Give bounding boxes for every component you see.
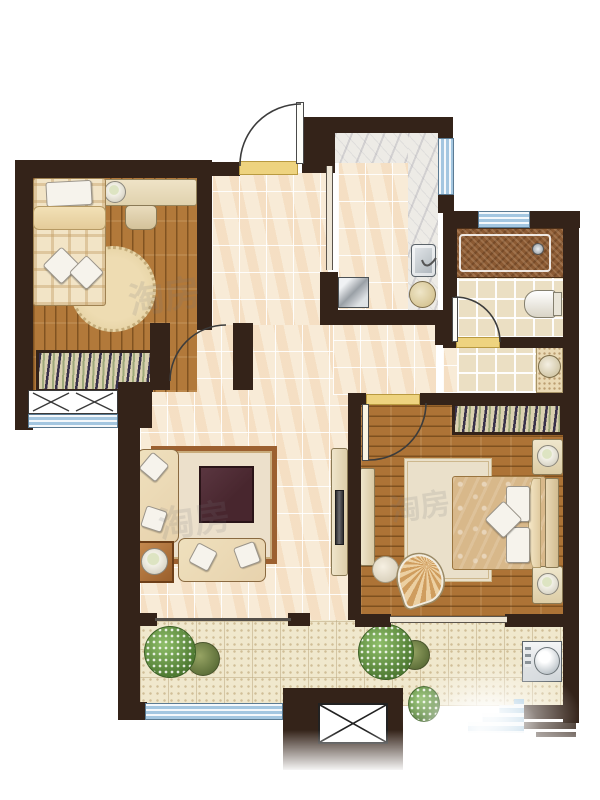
bathroom-threshold bbox=[456, 337, 500, 348]
wall-master-left bbox=[348, 393, 361, 620]
tv-screen bbox=[335, 490, 344, 545]
floor-lamp bbox=[141, 548, 168, 575]
wall-master-top-right bbox=[420, 393, 563, 405]
cooktop bbox=[338, 277, 369, 308]
round-basin bbox=[409, 281, 436, 308]
wall-kitchen-bottom bbox=[320, 310, 445, 325]
bedside-lamp-top bbox=[537, 445, 559, 467]
dresser bbox=[360, 468, 375, 566]
wall-bathroom-mid-right bbox=[500, 337, 563, 348]
wardrobe-master bbox=[452, 403, 563, 435]
bathroom-door-leaf bbox=[452, 297, 458, 342]
wall-master-bottom-right-stub bbox=[505, 614, 563, 627]
kitchen-window bbox=[438, 138, 454, 195]
bedside-lamp-bottom bbox=[537, 573, 559, 595]
entry-hall-floor bbox=[212, 173, 328, 327]
plant-right-large bbox=[358, 624, 414, 680]
wash-basin bbox=[538, 355, 561, 378]
desk-chair bbox=[125, 205, 157, 230]
ottoman bbox=[372, 556, 399, 583]
bay-window bbox=[28, 414, 118, 428]
wall-kitchen-top bbox=[320, 117, 453, 133]
wall-kitchen-right-upper bbox=[438, 130, 453, 138]
entry-threshold bbox=[239, 161, 298, 175]
floor-plan: 淘房 淘房 淘房 bbox=[0, 0, 600, 800]
plant-left-large bbox=[144, 626, 196, 678]
wall-living-balcony-stub-right bbox=[288, 613, 310, 626]
corridor-floor bbox=[333, 325, 436, 395]
kitchen-sliding-door bbox=[326, 166, 333, 270]
master-door-threshold bbox=[366, 394, 420, 405]
coffee-table bbox=[199, 466, 254, 523]
master-balcony-slider bbox=[390, 616, 507, 623]
wall-bay-corner bbox=[118, 382, 152, 428]
plant-bottom-small bbox=[408, 686, 440, 722]
wall-bedroom2-door-right-column bbox=[233, 323, 253, 390]
wall-left-lower bbox=[118, 428, 140, 720]
wall-bedroom2-door-left-column bbox=[150, 323, 170, 390]
entry-door-arc bbox=[240, 104, 301, 166]
wall-entry-left bbox=[180, 162, 240, 176]
wall-balcony-right-bottom bbox=[520, 705, 578, 719]
entry-door-leaf bbox=[296, 102, 304, 164]
bed-headboard bbox=[545, 478, 559, 568]
washroom-passage-floor bbox=[443, 348, 457, 393]
toilet-tank bbox=[553, 292, 562, 316]
elevator-cab bbox=[318, 703, 388, 744]
bay-window-seat bbox=[28, 390, 118, 414]
wall-balcony-bottom-left-corner bbox=[118, 702, 147, 720]
washing-machine-drum bbox=[534, 647, 560, 675]
wall-master-bottom-left-stub bbox=[355, 614, 391, 627]
ac-platform-mark bbox=[524, 722, 576, 729]
living-balcony-line bbox=[155, 618, 291, 621]
balcony-window bbox=[145, 703, 283, 720]
wall-right-exterior bbox=[563, 211, 579, 723]
blanket-fold bbox=[33, 206, 106, 230]
bathroom-window bbox=[478, 211, 530, 228]
toilet bbox=[524, 290, 556, 318]
washing-machine-panel bbox=[525, 647, 531, 667]
bathtub-faucet bbox=[532, 243, 544, 255]
master-door-leaf bbox=[362, 404, 369, 461]
ac-platform-mark bbox=[536, 732, 576, 737]
bed-pillow bbox=[45, 180, 92, 207]
kitchen-sink bbox=[411, 244, 436, 277]
wall-bedroom2-right bbox=[197, 160, 212, 330]
desk-lamp bbox=[104, 181, 126, 203]
